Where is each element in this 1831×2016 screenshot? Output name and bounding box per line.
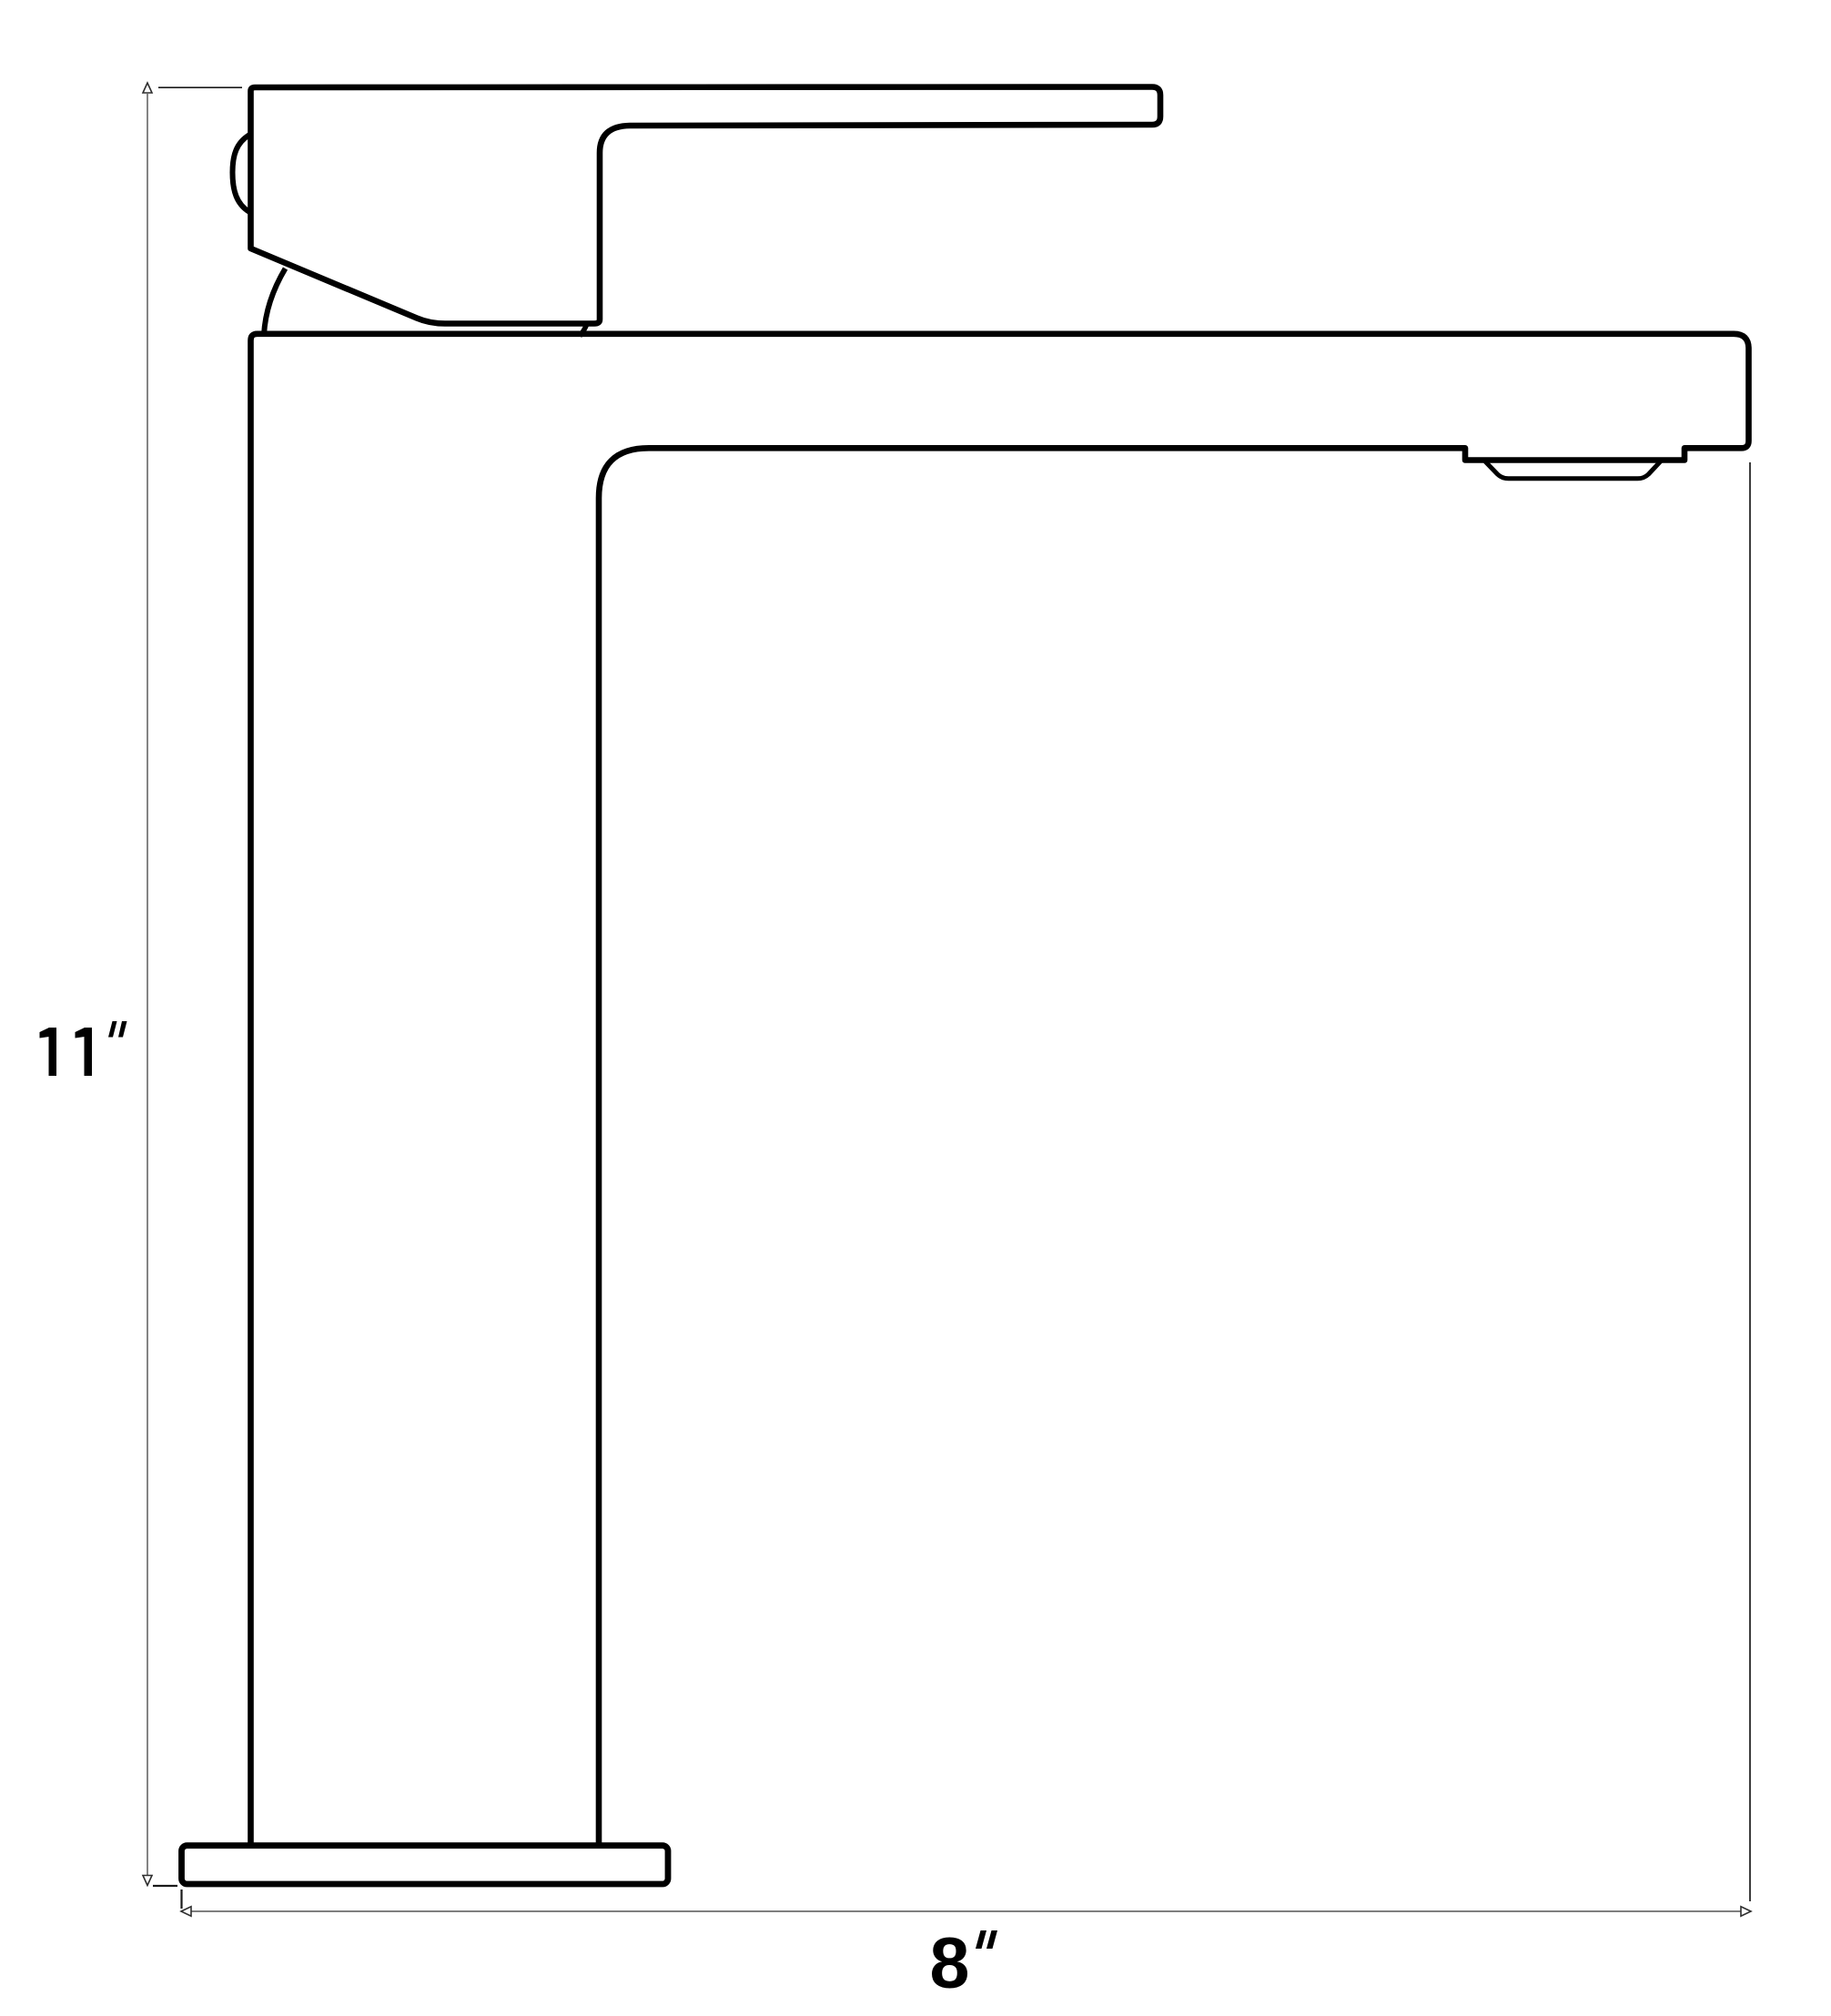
svg-text:8: 8 xyxy=(930,1922,970,2003)
